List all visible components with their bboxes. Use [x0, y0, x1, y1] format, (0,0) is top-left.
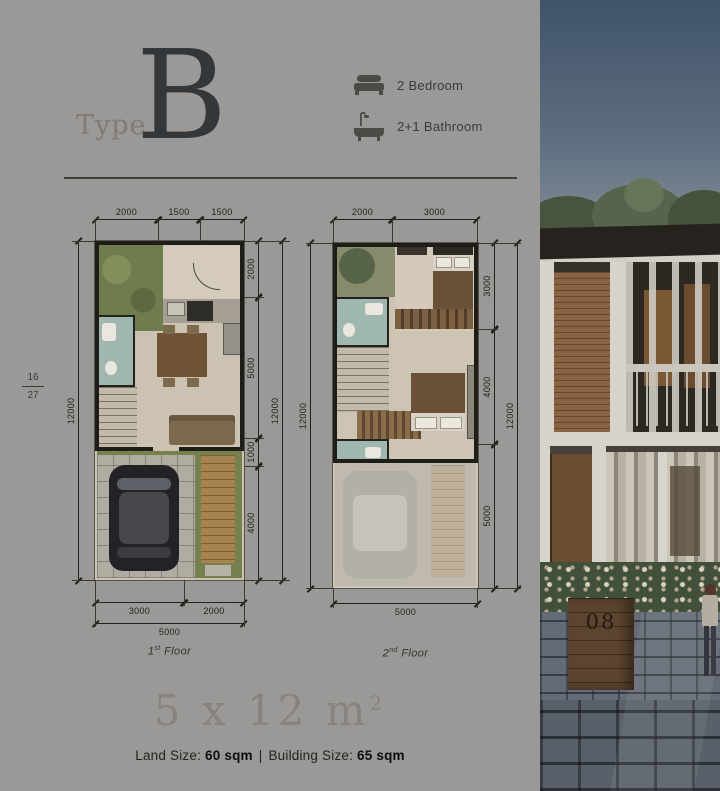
plan1-step-stone: [205, 565, 231, 576]
plan1-wall-top: [95, 241, 244, 245]
plan2-master-pillow: [415, 417, 437, 429]
dim-label: 1000: [246, 441, 256, 462]
plan1-wood-path: [201, 455, 235, 563]
dim-extension: [72, 580, 95, 581]
photo-balcony-balusters: [626, 372, 720, 426]
dim-extension: [478, 588, 521, 589]
photo-person: [700, 584, 720, 690]
plan1-toilet: [105, 361, 117, 375]
photo-person-leg: [704, 626, 709, 676]
floor-ordinal: st: [154, 645, 160, 652]
dim-label: 2000: [333, 207, 392, 217]
plan2-balcony-plant: [339, 248, 375, 284]
dim-plan2-bottom-total: 5000: [333, 603, 478, 604]
dim-plan1-right-1: 2000: [258, 241, 259, 297]
plan2-bed2-pillow: [436, 257, 452, 268]
plan2-wall-right: [474, 243, 478, 463]
plan2-bedroom2-console: [397, 247, 427, 255]
building-size-value: 65 sqm: [357, 748, 405, 763]
photo-person-torso: [702, 595, 718, 627]
photo-upper-floor: [540, 262, 720, 434]
dim-extension: [95, 219, 96, 241]
header-divider: [64, 177, 517, 179]
dim-plan1-right-2: 5000: [258, 297, 259, 438]
dim-plan2-left-total: 12000: [310, 243, 311, 588]
dim-label: 12000: [66, 397, 76, 424]
plan1-chair: [187, 325, 199, 334]
plan1-car-roof: [119, 492, 169, 544]
plan1-chair: [163, 378, 175, 387]
dim-plan1-right-total: 12000: [282, 241, 283, 580]
dim-label: 12000: [298, 402, 308, 429]
plan1-wall-left: [95, 241, 99, 451]
bathtub-icon: [352, 109, 386, 143]
plan1-car-windshield: [117, 478, 171, 490]
amenity-bathroom: 2+1 Bathroom: [352, 108, 542, 144]
page-current: 16: [20, 372, 46, 383]
house-photo: 08: [540, 0, 720, 791]
plan2-wall-top: [333, 243, 478, 247]
dim-plan1-bottom-2: 2000: [184, 602, 244, 603]
plan2-bed2-headboard: [433, 247, 473, 255]
plan1-bath-sink: [102, 323, 116, 341]
plan1-floor-label: 1st Floor: [95, 645, 244, 658]
plan2-bed2-blanket: [433, 271, 473, 309]
dim-label: 2000: [246, 258, 256, 279]
dim-extension: [244, 580, 290, 581]
unit-dimensions-sup: 2: [370, 691, 387, 715]
dim-plan1-top-3: 1500: [200, 219, 244, 220]
dim-label: 12000: [505, 402, 515, 429]
floor-ordinal: nd: [389, 647, 398, 654]
photo-planter-box: 08: [568, 598, 634, 690]
dim-extension: [477, 588, 478, 608]
photo-window-glass: [670, 466, 700, 556]
dim-plan2-right-2: 4000: [494, 329, 495, 444]
dim-extension: [184, 580, 185, 606]
dim-extension: [306, 243, 333, 244]
dim-label: 3000: [392, 207, 477, 217]
plan2-bed2: [433, 247, 473, 309]
plan2-bathroom-upper: [335, 297, 389, 347]
plan1-car-rear-window: [117, 547, 171, 558]
photo-wood-panel: [554, 272, 610, 434]
dim-plan2-top-2: 3000: [392, 219, 477, 220]
dim-plan2-right-total: 12000: [517, 243, 518, 588]
photo-window-mullion: [658, 452, 667, 570]
photo-lower-floor: [540, 446, 720, 570]
dim-extension: [158, 219, 159, 241]
photo-floor-slab: [540, 432, 720, 446]
land-size-label: Land Size:: [135, 748, 201, 763]
dim-plan2-right-1: 3000: [494, 243, 495, 329]
dim-plan1-bottom-total: 5000: [95, 623, 244, 624]
dim-plan1-bottom-1: 3000: [95, 602, 184, 603]
plan2-bed2-pillow: [454, 257, 470, 268]
plan1-stairs: [97, 387, 137, 447]
plan2-floor-label: 2nd Floor: [333, 647, 478, 660]
dim-label: 3000: [482, 275, 492, 296]
photo-column: [540, 446, 550, 570]
dim-extension: [244, 297, 264, 298]
plan2-fade-overlay: [335, 463, 476, 586]
plan2-master-blanket: [411, 373, 465, 413]
plan2-wall-left: [333, 243, 337, 463]
plan2-master-pillow: [440, 417, 462, 429]
type-letter: B: [136, 34, 227, 158]
plan2-master-bed: [411, 373, 465, 431]
bedroom-count-label: 2 Bedroom: [397, 78, 463, 93]
photo-column: [540, 262, 554, 434]
plan1-chair: [187, 378, 199, 387]
dim-extension: [392, 219, 393, 243]
dim-extension: [478, 329, 498, 330]
land-size-value: 60 sqm: [205, 748, 253, 763]
plan1-car: [109, 465, 179, 571]
amenity-bedroom: 2 Bedroom: [352, 72, 532, 98]
plan1-stove: [187, 301, 213, 321]
dim-plan1-left-total: 12000: [78, 241, 79, 580]
photo-column: [592, 446, 606, 570]
brochure-page: Type B 2 Bedroom 2+1 Bathroom 16: [0, 0, 720, 791]
dim-extension: [333, 219, 334, 243]
plan1-dining-table: [157, 333, 207, 377]
page-indicator: 16 27: [20, 372, 46, 401]
house-number: 08: [568, 610, 634, 634]
dim-extension: [244, 438, 264, 439]
plan1-bathroom: [97, 315, 135, 387]
dim-plan1-top-2: 1500: [158, 219, 200, 220]
photo-column: [610, 262, 626, 434]
photo-balcony-railing: [626, 364, 720, 372]
dim-plan1-right-4: 4000: [258, 466, 259, 580]
dim-extension: [72, 241, 95, 242]
dim-label: 12000: [270, 397, 280, 424]
dim-label: 3000: [95, 606, 184, 616]
dim-extension: [306, 588, 333, 589]
unit-dimensions-text: 5 x 12 m: [154, 686, 370, 735]
bathroom-count-label: 2+1 Bathroom: [397, 119, 483, 134]
dim-extension: [333, 588, 334, 608]
dim-plan2-top-1: 2000: [333, 219, 392, 220]
photo-person-leg: [711, 626, 716, 676]
page-indicator-divider: [22, 386, 44, 387]
dim-label: 5000: [482, 505, 492, 526]
dim-label: 5000: [333, 607, 478, 617]
size-divider: |: [259, 748, 263, 763]
dim-extension: [478, 243, 521, 244]
dim-label: 1500: [200, 207, 244, 217]
dim-label: 1500: [158, 207, 200, 217]
floor-word: Floor: [401, 648, 428, 660]
plan1-sofa: [169, 415, 235, 445]
bed-icon: [352, 74, 386, 96]
plan2-stairs: [335, 347, 389, 413]
page-total: 27: [20, 390, 46, 401]
plan2-wardrobe2: [395, 309, 473, 329]
dim-plan2-right-3: 5000: [494, 444, 495, 588]
unit-dimensions: 5 x 12 m2: [0, 686, 540, 735]
plan1-sink: [167, 302, 185, 316]
dim-extension: [200, 219, 201, 241]
dim-plan1-top-1: 2000: [95, 219, 158, 220]
dim-label: 4000: [482, 376, 492, 397]
dim-label: 2000: [95, 207, 158, 217]
floor-plan-1: [95, 241, 244, 580]
plan1-chair: [163, 325, 175, 334]
photo-balcony: [626, 262, 720, 434]
plan1-wall-right: [240, 241, 244, 451]
plan2-bath-sink2: [365, 447, 381, 458]
photo-tree: [624, 178, 664, 212]
plan2-bath-sink: [365, 303, 383, 315]
dim-extension: [244, 466, 264, 467]
size-summary: Land Size: 60 sqm|Building Size: 65 sqm: [0, 748, 540, 763]
photo-door: [550, 454, 594, 570]
dim-extension: [478, 444, 498, 445]
dim-extension: [244, 580, 245, 627]
dim-extension: [95, 580, 96, 627]
floor-word: Floor: [164, 646, 191, 658]
dim-extension: [477, 219, 478, 243]
dim-plan1-right-3: 1000: [258, 438, 259, 466]
plan2-toilet: [343, 323, 355, 337]
building-size-label: Building Size:: [268, 748, 353, 763]
plan2-balcony: [335, 245, 395, 297]
plan2-lower-roof-area: [335, 463, 476, 586]
dim-extension: [244, 219, 245, 241]
dim-label: 4000: [246, 512, 256, 533]
floor-plan-2: [333, 243, 478, 588]
dim-label: 2000: [184, 606, 244, 616]
dim-extension: [244, 241, 290, 242]
dim-label: 5000: [95, 627, 244, 637]
dim-label: 5000: [246, 357, 256, 378]
